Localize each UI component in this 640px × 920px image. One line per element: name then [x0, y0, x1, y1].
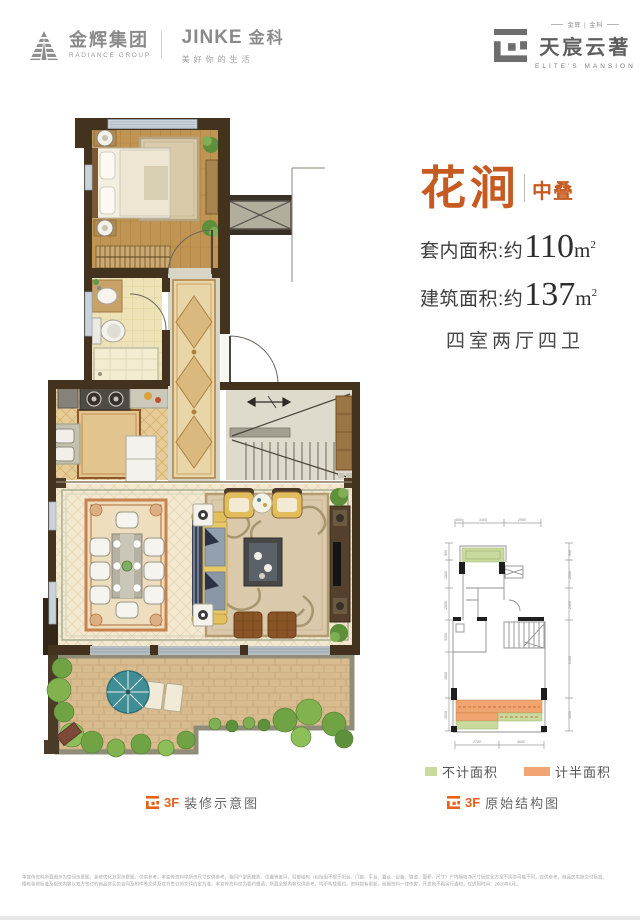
- disclaimer-line-1: 本宣传资料所载图示为空间示意图，装修优化方案示意图，仅供参考。本宣传资料中所示尺…: [22, 874, 618, 881]
- caption-decorated-plan: 3F 装修示意图: [146, 793, 259, 812]
- header-right-logo: 金辉 | 金科 天宸云著 ELITE'S MANSION: [494, 20, 636, 70]
- gross-area-line: 建筑面积:约137m2: [420, 276, 628, 314]
- living-area: [192, 488, 350, 642]
- svg-text:900: 900: [568, 550, 572, 556]
- svg-text:3000: 3000: [444, 711, 448, 719]
- mansion-name: 天宸云著: [539, 31, 631, 60]
- svg-text:2850: 2850: [444, 601, 448, 609]
- fridge: [126, 436, 156, 482]
- terrace: [44, 652, 353, 757]
- side-round-table: [252, 493, 272, 513]
- bottom-edge-bar: [0, 916, 640, 920]
- jinke-slogan: 美好你的生活: [182, 54, 285, 65]
- structure-schematic: 650 3400 2950 900 2800 2850 3300 4800 30…: [435, 505, 627, 767]
- svg-text:650: 650: [456, 518, 462, 522]
- title-divider: [524, 174, 525, 202]
- unit-title: 花涧: [420, 152, 520, 218]
- bathroom: [92, 278, 166, 382]
- svg-text:2700: 2700: [473, 740, 481, 744]
- vanity-sink: [92, 279, 122, 312]
- jinke-name-cn: 金科: [249, 24, 285, 48]
- bedroom: [92, 130, 219, 278]
- runner-diamonds: [176, 296, 212, 468]
- caption-label: 装修示意图: [184, 793, 259, 812]
- coffee-table: [244, 538, 282, 586]
- legend: 不计面积 计半面积: [425, 762, 611, 781]
- unit-info: 花涧 中叠 套内面积:约110m2 建筑面积:约137m2 四室两厅四卫: [420, 152, 628, 353]
- unit-badge: 中叠: [532, 175, 574, 204]
- radiance-name-en: RADIANCE GROUP: [69, 52, 151, 59]
- svg-text:2800: 2800: [444, 571, 448, 579]
- room-layout: 四室两厅四卫: [420, 326, 610, 353]
- caption-structure-plan: 3F 原始结构图: [447, 793, 560, 812]
- svg-text:3000: 3000: [568, 711, 572, 719]
- wardrobe: [96, 246, 170, 268]
- radiance-name: 金辉集团: [69, 30, 151, 50]
- stair-cabinet: [336, 396, 352, 478]
- orange-swatch: [524, 767, 550, 776]
- inner-area-line: 套内面积:约110m2: [420, 228, 628, 266]
- floor-number: 3F: [465, 795, 480, 810]
- bed: [92, 148, 170, 218]
- svg-text:3300: 3300: [444, 633, 448, 641]
- disclaimer: 本宣传资料所载图示为空间示意图，装修优化方案示意图，仅供参考。本宣传资料中所示尺…: [22, 874, 618, 888]
- shower: [94, 348, 158, 382]
- legend-not-counted: 不计面积: [425, 762, 498, 781]
- svg-text:3600: 3600: [517, 740, 525, 744]
- svg-text:2950: 2950: [518, 518, 526, 522]
- floor-number: 3F: [164, 795, 179, 810]
- dining-area: [86, 500, 166, 630]
- centerpiece-plant: [122, 561, 132, 571]
- elevator-shaft: [228, 168, 325, 282]
- bedroom-bench: [206, 160, 218, 214]
- logo-divider: [161, 31, 162, 59]
- svg-text:6400: 6400: [568, 656, 572, 664]
- legend-half-counted: 计半面积: [524, 762, 611, 781]
- mansion-subbrand: 金辉 | 金科: [547, 20, 623, 29]
- brand-mark-icon: [146, 796, 159, 809]
- svg-text:3400: 3400: [479, 518, 487, 522]
- svg-text:2600: 2600: [568, 571, 572, 579]
- toilet: [92, 318, 125, 344]
- patio-umbrella: [107, 671, 149, 713]
- svg-text:2600: 2600: [568, 601, 572, 609]
- mansion-logo-icon: [494, 29, 527, 62]
- tv-console: [330, 506, 350, 622]
- stove: [80, 388, 130, 410]
- mansion-name-en: ELITE'S MANSION: [535, 63, 636, 70]
- disclaimer-line-2: 楼栋装修标准及相关内容以双方签订的商品房买卖合同及附件等文件及双方签订的文件约定…: [22, 881, 618, 888]
- living-dining-room: [56, 484, 354, 648]
- staircase: [226, 390, 352, 480]
- floorplan-flyer: 金辉集团 RADIANCE GROUP JINKE 金科 美好你的生活 金辉 |…: [0, 0, 640, 920]
- green-swatch: [425, 767, 437, 776]
- brand-mark-icon: [447, 796, 460, 809]
- header-left-logos: 金辉集团 RADIANCE GROUP JINKE 金科 美好你的生活: [27, 24, 285, 65]
- svg-text:4800: 4800: [444, 672, 448, 680]
- kitchen: [50, 388, 168, 482]
- range-hood: [58, 388, 78, 408]
- decorated-floorplan: [40, 115, 370, 765]
- radiance-logo-icon: [27, 28, 61, 62]
- entry-door: [221, 334, 278, 384]
- jinke-logo-text: JINKE: [182, 27, 243, 49]
- living-windows: [90, 645, 330, 655]
- caption-label: 原始结构图: [485, 793, 560, 812]
- svg-text:900: 900: [444, 550, 448, 556]
